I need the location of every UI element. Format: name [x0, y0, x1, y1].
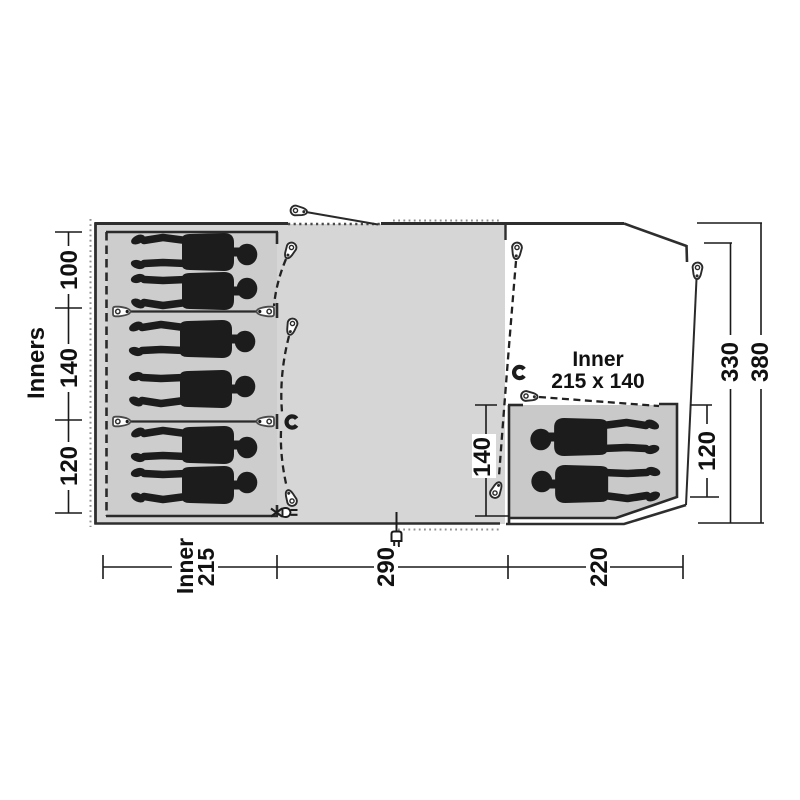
svg-text:Inners: Inners	[23, 327, 50, 399]
svg-text:140: 140	[469, 437, 496, 477]
svg-text:380: 380	[747, 342, 774, 382]
svg-text:120: 120	[56, 446, 83, 486]
svg-text:Inner: Inner	[572, 348, 623, 371]
svg-text:330: 330	[717, 342, 744, 382]
svg-text:215: 215	[193, 548, 219, 587]
svg-text:215 x 140: 215 x 140	[551, 370, 644, 393]
svg-text:290: 290	[373, 547, 400, 587]
svg-text:120: 120	[694, 431, 721, 471]
svg-text:220: 220	[586, 547, 613, 587]
svg-text:140: 140	[56, 348, 83, 388]
svg-text:100: 100	[56, 250, 83, 290]
